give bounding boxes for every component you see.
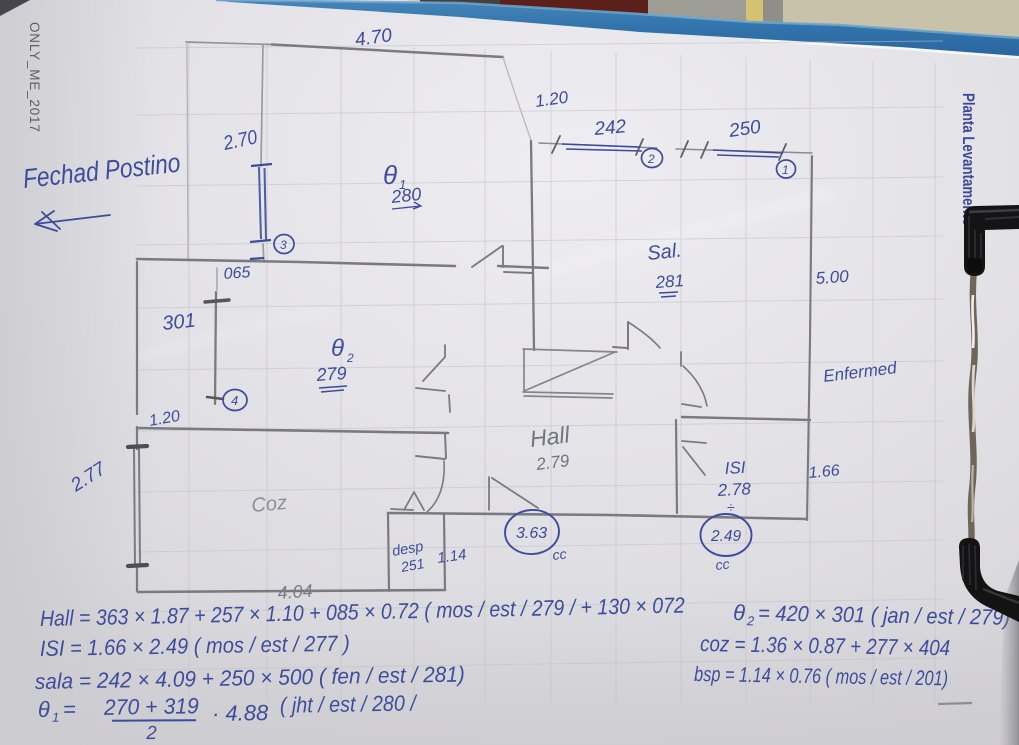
svg-text:θ: θ	[383, 160, 397, 190]
svg-text:cc: cc	[552, 546, 568, 563]
svg-text:2: 2	[746, 613, 755, 628]
svg-text:÷: ÷	[727, 499, 735, 515]
svg-text:4: 4	[231, 393, 238, 408]
svg-text:279: 279	[315, 363, 347, 385]
svg-text:coz = 1.36 × 0.87 + 277 × 404: coz = 1.36 × 0.87 + 277 × 404	[700, 631, 950, 660]
svg-text:Planta Levantamento: Planta Levantamento	[959, 93, 977, 226]
svg-text:Hall: Hall	[528, 421, 571, 452]
svg-text:242: 242	[593, 116, 628, 140]
svg-text:bsp = 1.14 × 0.76 ( mos / est: bsp = 1.14 × 0.76 ( mos / est / 201)	[694, 663, 948, 690]
svg-text:θ: θ	[331, 335, 344, 362]
svg-text:301: 301	[161, 310, 196, 335]
svg-text:281: 281	[654, 271, 685, 292]
svg-text:2.49: 2.49	[710, 528, 742, 545]
svg-text:θ: θ	[38, 697, 50, 722]
svg-text:ONLY_ME_2017: ONLY_ME_2017	[27, 22, 42, 133]
svg-text:1.66: 1.66	[808, 462, 841, 482]
svg-text:270 + 319: 270 + 319	[103, 693, 199, 720]
svg-text:= 420 × 301 ( jan / est / 279): = 420 × 301 ( jan / est / 279)	[758, 600, 1010, 629]
svg-text:· 4.88: · 4.88	[212, 700, 269, 726]
svg-text:2: 2	[647, 152, 655, 166]
svg-text:( jht / est / 280 /: ( jht / est / 280 /	[280, 690, 418, 717]
svg-text:1: 1	[52, 710, 59, 725]
svg-text:1: 1	[782, 163, 789, 177]
svg-text:cc: cc	[715, 556, 731, 573]
svg-text:ISI: ISI	[724, 458, 746, 478]
svg-text:3: 3	[280, 238, 287, 252]
svg-text:2.78: 2.78	[716, 479, 752, 500]
svg-text:3.63: 3.63	[516, 525, 547, 542]
svg-text:065: 065	[223, 264, 251, 283]
svg-text:5.00: 5.00	[815, 267, 850, 288]
svg-text:2: 2	[346, 351, 354, 365]
svg-text:=: =	[63, 696, 76, 721]
svg-text:2: 2	[145, 723, 157, 744]
svg-text:Coz: Coz	[251, 492, 288, 517]
svg-text:Sal.: Sal.	[646, 239, 683, 264]
svg-text:θ: θ	[733, 600, 745, 625]
